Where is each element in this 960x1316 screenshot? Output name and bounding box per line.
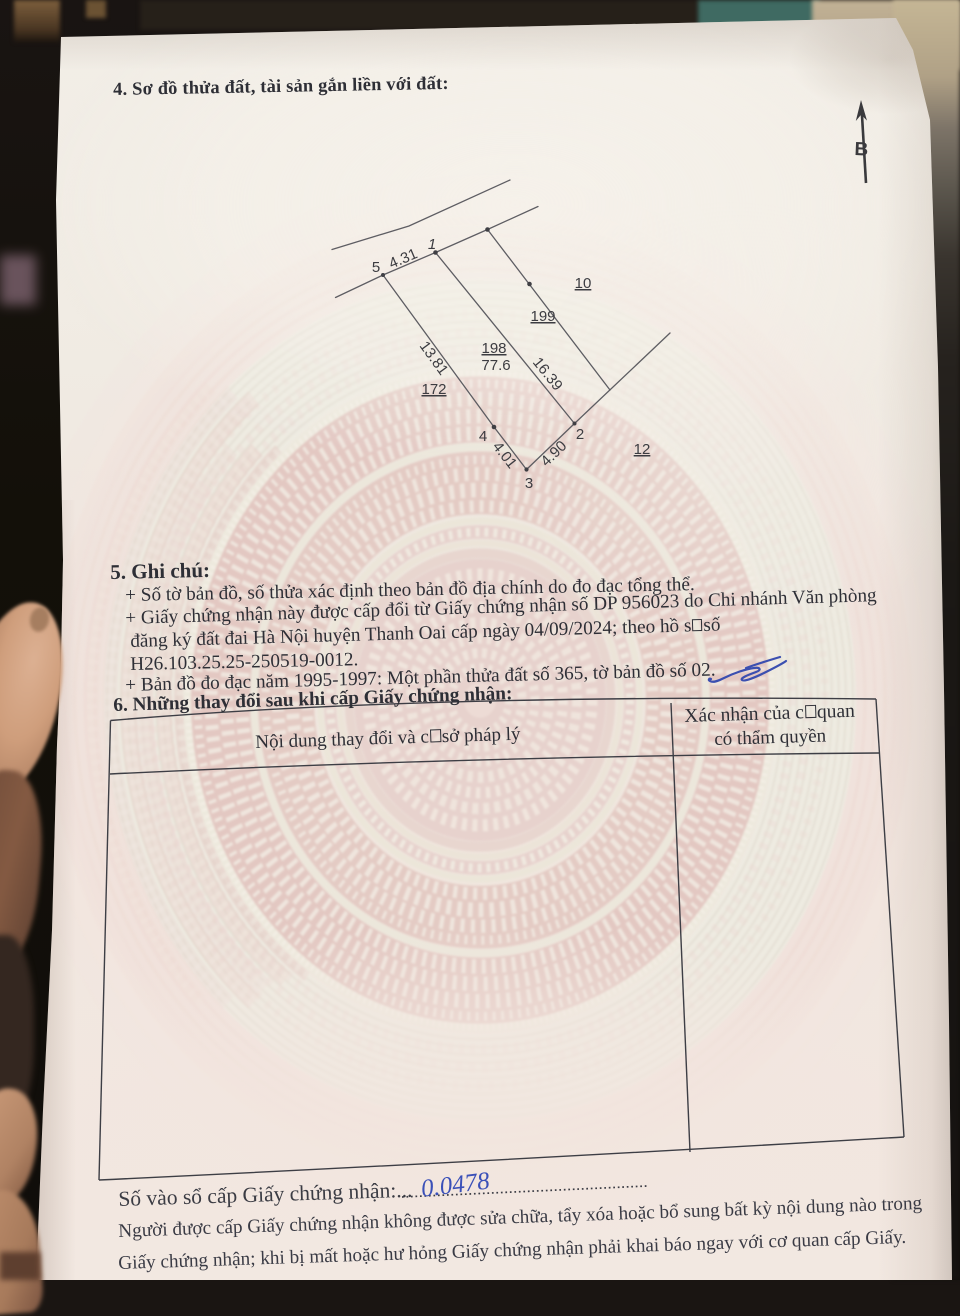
svg-text:4: 4 bbox=[479, 428, 487, 445]
svg-text:12: 12 bbox=[634, 441, 651, 458]
svg-text:0.0478: 0.0478 bbox=[420, 1167, 492, 1202]
svg-text:198: 198 bbox=[481, 340, 506, 357]
svg-text:13.81: 13.81 bbox=[416, 338, 452, 378]
svg-text:4.31: 4.31 bbox=[386, 245, 420, 272]
svg-text:172: 172 bbox=[421, 381, 446, 398]
svg-text:4.90: 4.90 bbox=[537, 438, 570, 471]
svg-text:10: 10 bbox=[575, 275, 592, 292]
svg-text:5: 5 bbox=[372, 259, 380, 276]
svg-text:199: 199 bbox=[530, 308, 555, 325]
svg-text:1: 1 bbox=[428, 236, 436, 253]
svg-text:2: 2 bbox=[576, 426, 584, 443]
svg-text:3: 3 bbox=[525, 475, 533, 492]
svg-text:77.6: 77.6 bbox=[481, 357, 510, 374]
svg-text:4.01: 4.01 bbox=[489, 438, 520, 471]
